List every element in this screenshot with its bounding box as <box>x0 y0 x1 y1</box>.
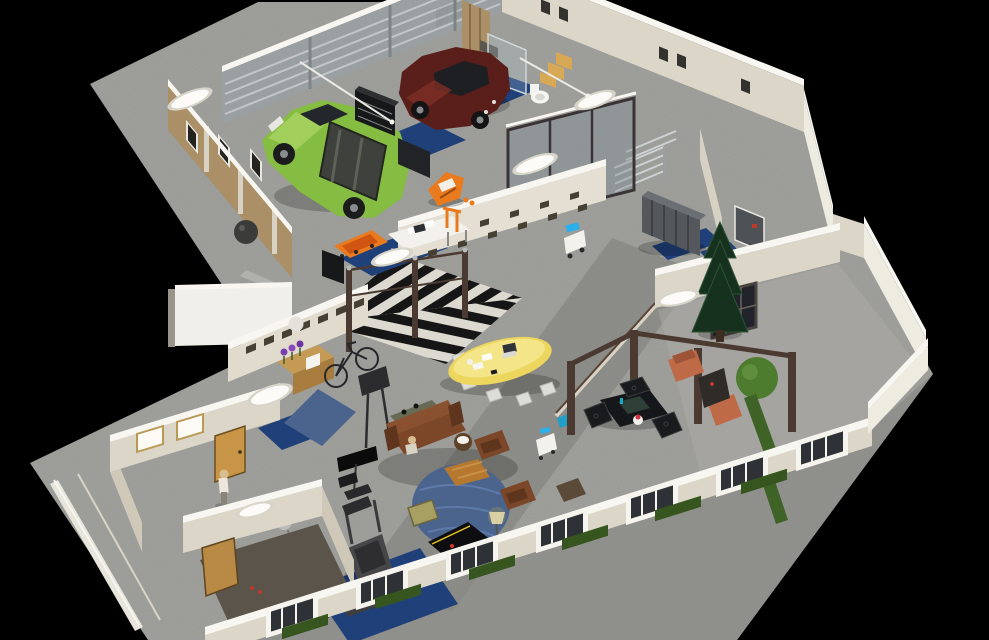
office-tan-door <box>215 426 245 482</box>
white-cylinder-table <box>289 317 304 332</box>
side-table <box>454 433 472 451</box>
seated-person-head <box>408 436 416 444</box>
round-bush <box>736 357 778 399</box>
floorplan-render <box>0 0 989 640</box>
render-canvas <box>0 0 989 640</box>
dark-ball <box>234 220 258 244</box>
